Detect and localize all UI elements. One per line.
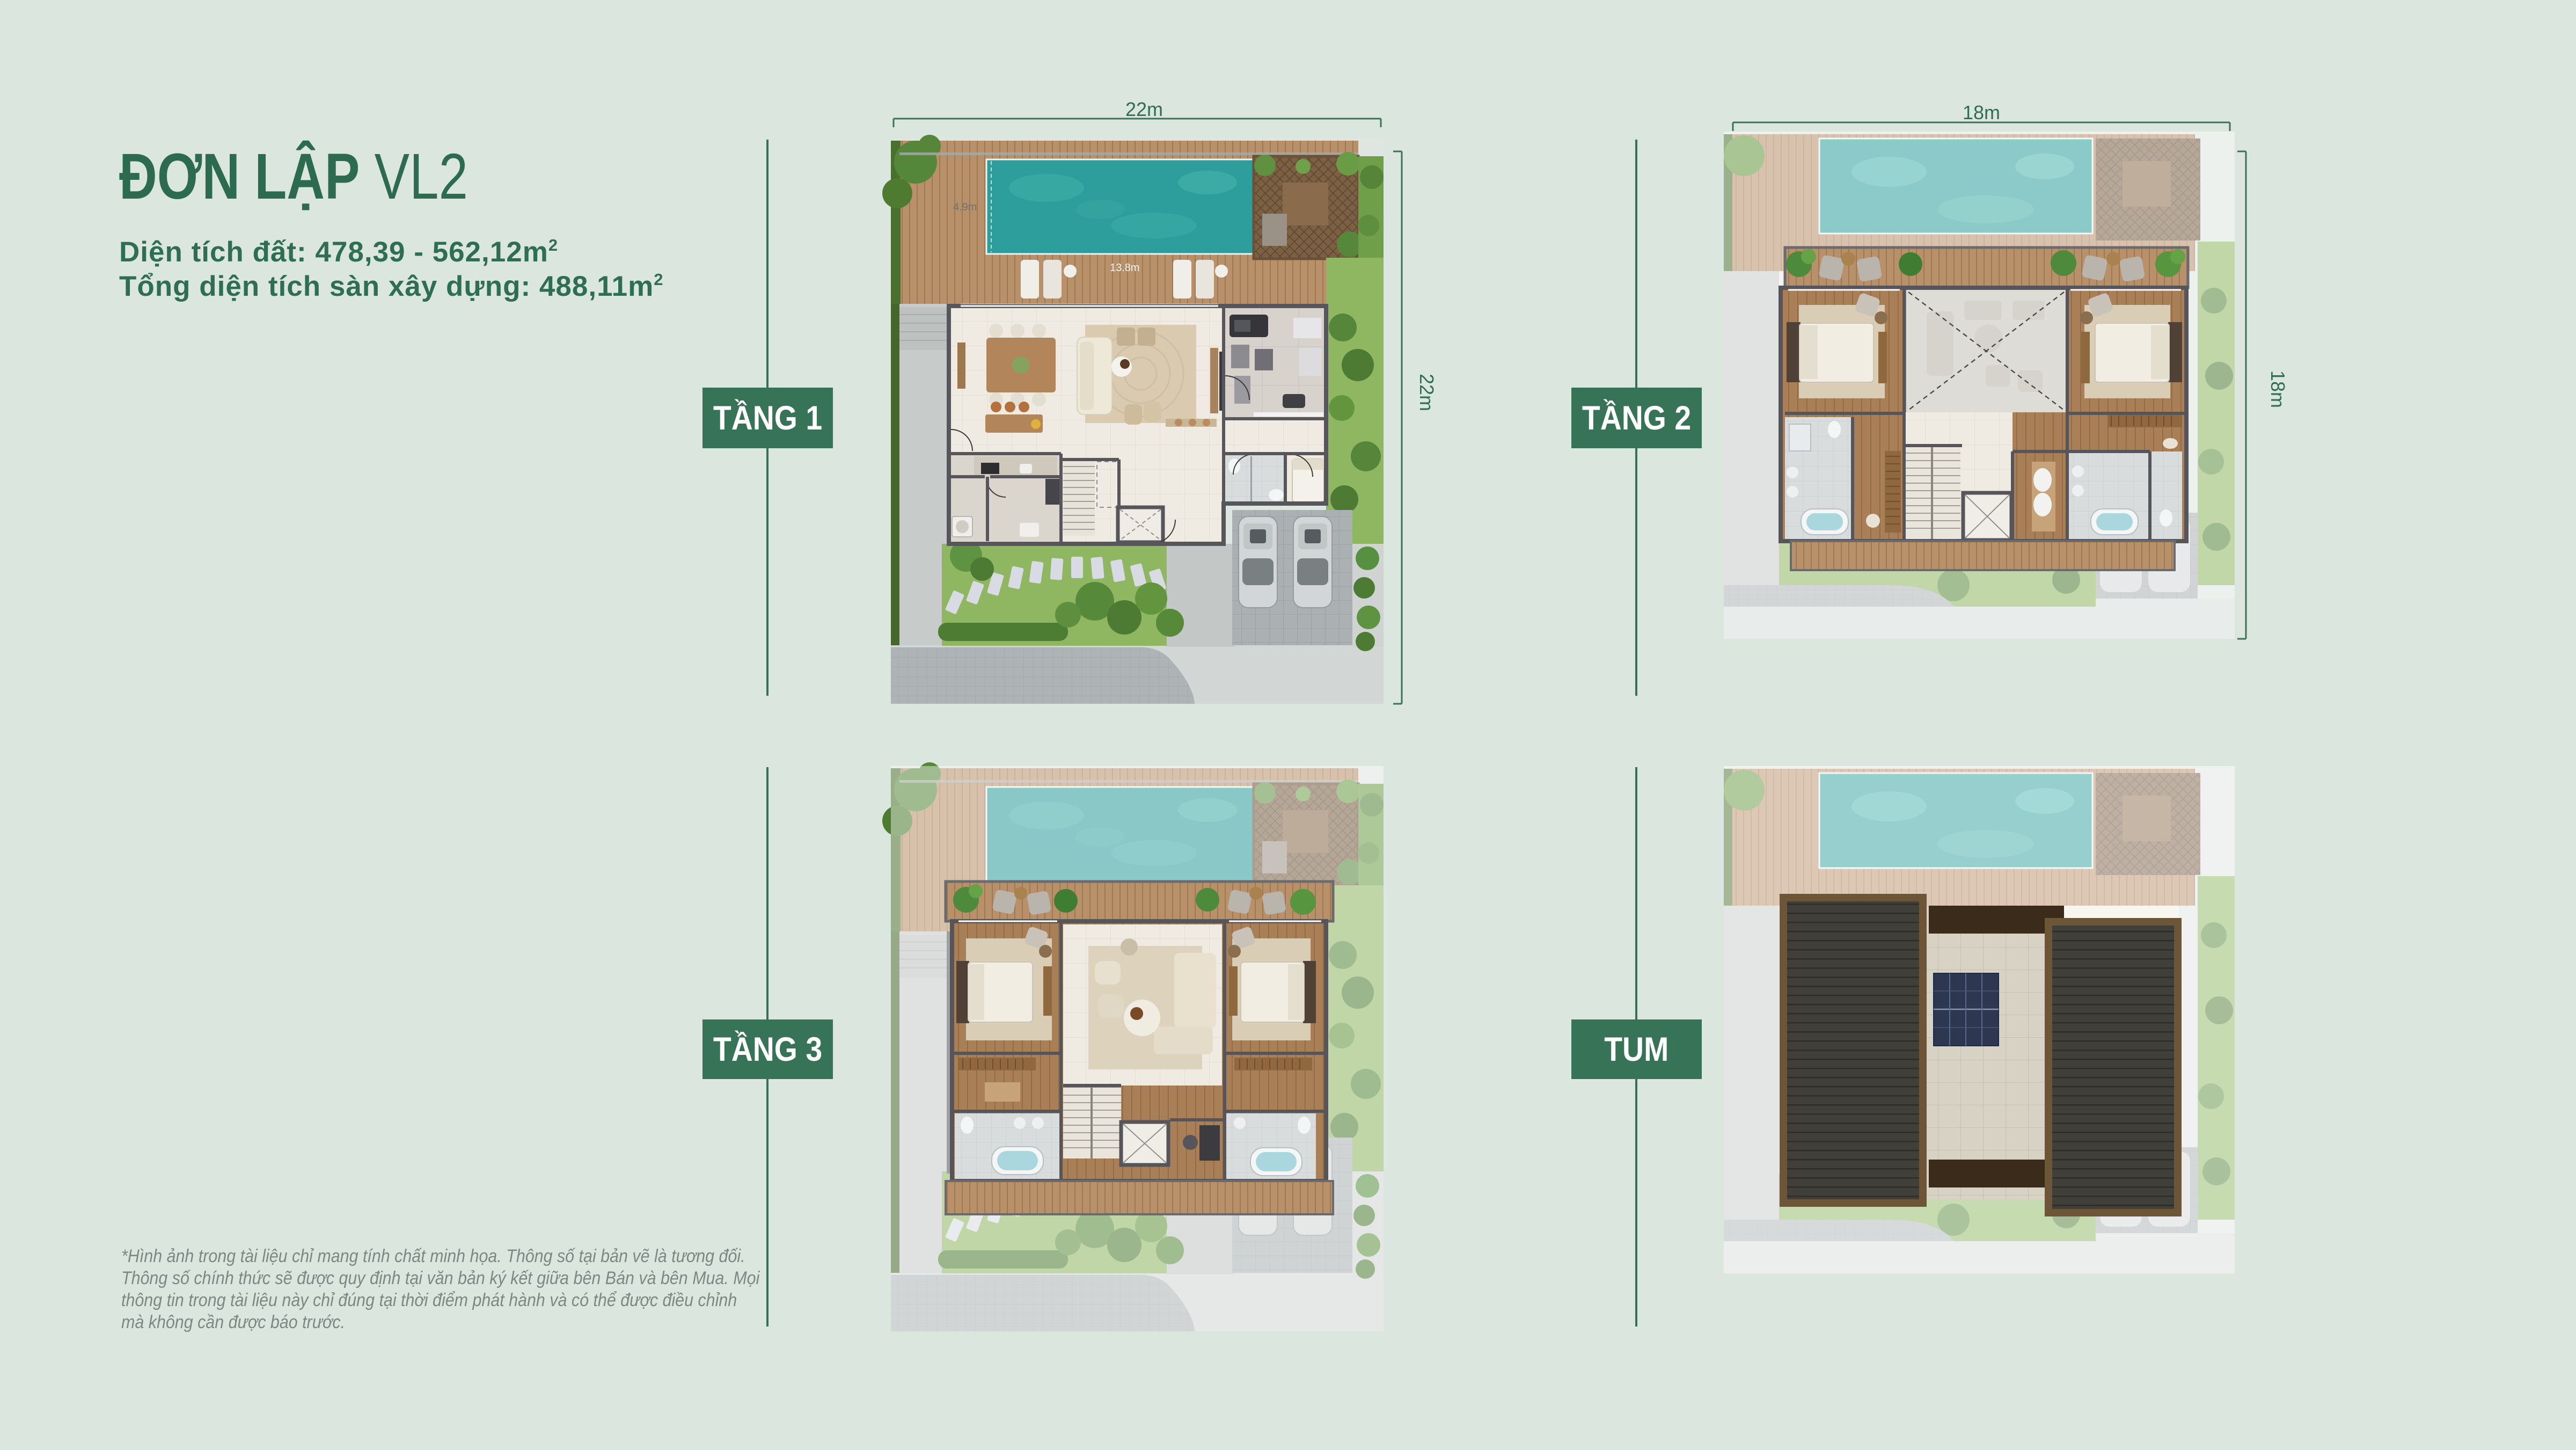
svg-text:22m: 22m	[1125, 98, 1163, 120]
svg-text:13.8m: 13.8m	[1110, 262, 1140, 274]
svg-text:18m: 18m	[1963, 101, 2000, 123]
svg-text:22m: 22m	[1416, 374, 1438, 411]
svg-text:4.9m: 4.9m	[953, 201, 977, 213]
svg-text:18m: 18m	[2267, 370, 2289, 408]
